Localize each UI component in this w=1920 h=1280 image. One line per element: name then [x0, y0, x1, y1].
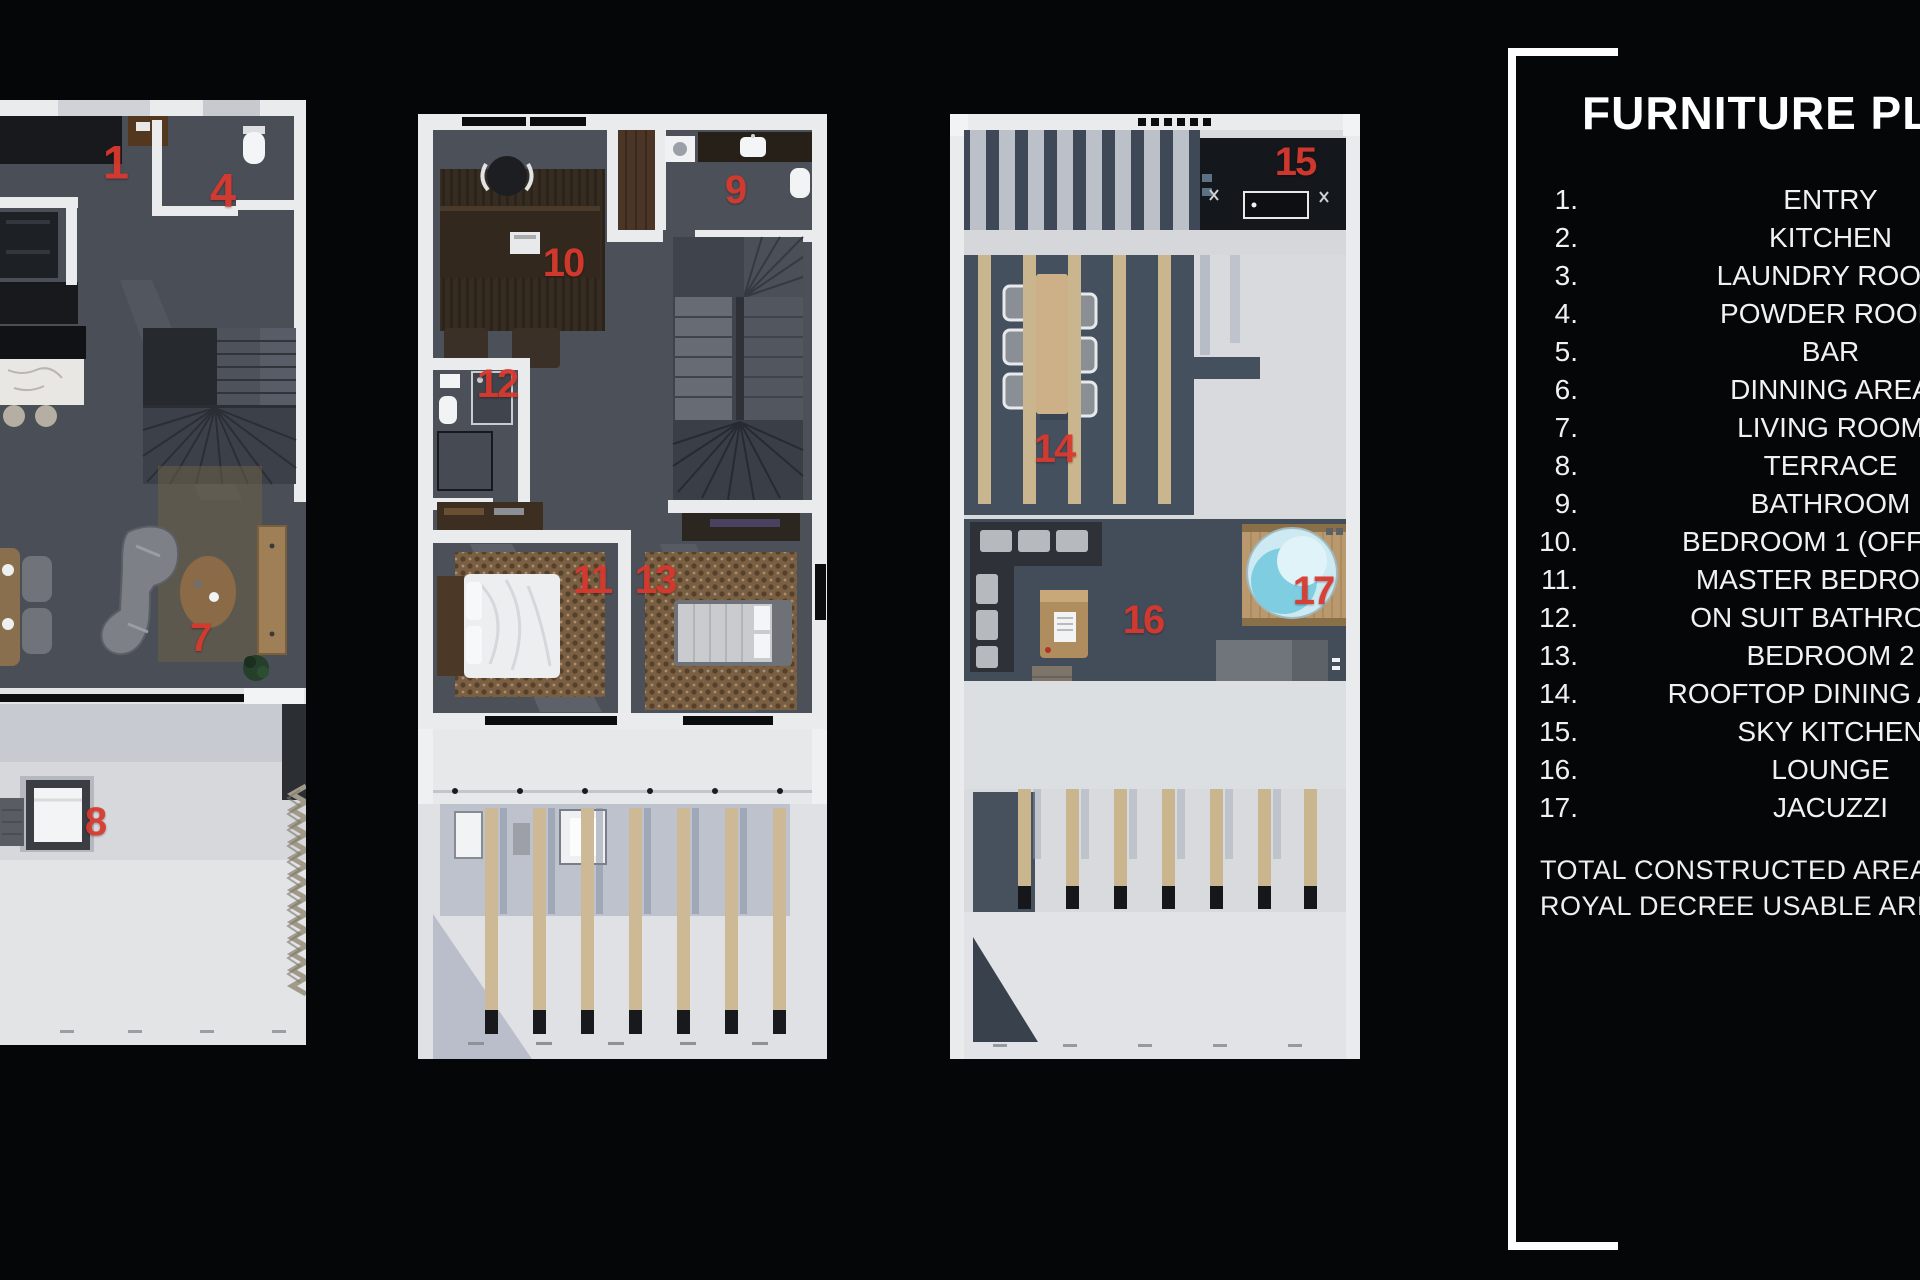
room-marker-master-bedroom: 11 [573, 560, 611, 600]
legend-item-number: 17. [1508, 792, 1578, 824]
legend-item-number: 3. [1508, 260, 1578, 292]
legend-item-kitchen: 2.KITCHEN [1508, 219, 1920, 257]
room-marker-bathroom: 9 [725, 170, 745, 210]
legend-title: FURNITURE PLAN [1582, 90, 1920, 136]
room-marker-bedroom1-office: 10 [543, 243, 584, 283]
legend-item-number: 9. [1508, 488, 1578, 520]
legend-item-number: 2. [1508, 222, 1578, 254]
legend-item-dinning-area: 6.DINNING AREA [1508, 371, 1920, 409]
royal-decree-usable-area: ROYAL DECREE USABLE AREA: [1540, 888, 1920, 924]
legend-item-bar: 5.BAR [1508, 333, 1920, 371]
legend-item-label: ROOFTOP DINING AREA [1578, 678, 1920, 710]
floor-plan-rooftop: 15 14 16 17 [948, 114, 1363, 1059]
legend-item-sky-kitchen: 15.SKY KITCHEN [1508, 713, 1920, 751]
legend-item-label: JACUZZI [1578, 792, 1920, 824]
legend-item-bathroom: 9.BATHROOM [1508, 485, 1920, 523]
staircase [143, 328, 296, 484]
floor-plan-first-graphic [410, 114, 835, 1059]
legend-item-powder-room: 4.POWDER ROOM [1508, 295, 1920, 333]
room-marker-powder-room: 4 [210, 167, 234, 214]
legend-item-laundry-room: 3.LAUNDRY ROOM [1508, 257, 1920, 295]
legend-item-entry: 1.ENTRY [1508, 181, 1920, 219]
total-constructed-area: TOTAL CONSTRUCTED AREA: 2 [1540, 852, 1920, 888]
furniture-plan-sheet: 1 4 7 8 [0, 0, 1920, 1280]
lower-pergola [964, 681, 1346, 1059]
legend-item-label: POWDER ROOM [1578, 298, 1920, 330]
legend-item-number: 6. [1508, 374, 1578, 406]
legend-item-label: LAUNDRY ROOM [1578, 260, 1920, 292]
legend-item-label: BEDROOM 1 (OFFICE) [1578, 526, 1920, 558]
room-marker-terrace: 8 [85, 802, 105, 842]
pergola-terrace [418, 804, 827, 1059]
legend-item-label: SKY KITCHEN [1578, 716, 1920, 748]
legend-item-number: 8. [1508, 450, 1578, 482]
room-marker-entry: 1 [103, 139, 127, 186]
room-marker-lounge: 16 [1123, 600, 1164, 640]
legend-item-label: KITCHEN [1578, 222, 1920, 254]
floor-plan-ground: 1 4 7 8 [0, 100, 306, 1045]
legend-item-label: MASTER BEDROOM [1578, 564, 1920, 596]
legend-item-label: BEDROOM 2 [1578, 640, 1920, 672]
room-marker-bedroom2: 13 [635, 560, 676, 600]
room-marker-ensuite: 12 [477, 364, 518, 404]
legend-item-rooftop-dining: 14.ROOFTOP DINING AREA [1508, 675, 1920, 713]
legend-item-master-bedroom: 11.MASTER BEDROOM [1508, 561, 1920, 599]
legend-item-label: LIVING ROOM [1578, 412, 1920, 444]
legend-item-number: 16. [1508, 754, 1578, 786]
legend-item-label: BATHROOM [1578, 488, 1920, 520]
room-marker-sky-kitchen: 15 [1275, 142, 1316, 182]
legend-item-living-room: 7.LIVING ROOM [1508, 409, 1920, 447]
legend-item-bedroom1-office: 10.BEDROOM 1 (OFFICE) [1508, 523, 1920, 561]
room-marker-jacuzzi: 17 [1293, 571, 1334, 611]
legend-item-label: ON SUIT BATHROOM [1578, 602, 1920, 634]
terrace [0, 688, 306, 1045]
legend-item-ensuite-bathroom: 12.ON SUIT BATHROOM [1508, 599, 1920, 637]
floor-plan-ground-graphic [0, 100, 306, 1045]
master-bedroom [433, 502, 631, 713]
legend-item-terrace: 8.TERRACE [1508, 447, 1920, 485]
room-marker-rooftop-dining: 14 [1034, 429, 1075, 469]
legend-item-label: ENTRY [1578, 184, 1920, 216]
room-marker-living-room: 7 [190, 618, 210, 658]
legend-list: 1.ENTRY 2.KITCHEN 3.LAUNDRY ROOM 4.POWDE… [1508, 181, 1920, 827]
legend-item-number: 11. [1508, 564, 1578, 596]
legend-item-number: 5. [1508, 336, 1578, 368]
legend-item-label: TERRACE [1578, 450, 1920, 482]
floor-plan-first: 9 10 12 11 13 [410, 114, 835, 1059]
staircase [668, 237, 812, 513]
legend-item-lounge: 16.LOUNGE [1508, 751, 1920, 789]
legend-item-bedroom2: 13.BEDROOM 2 [1508, 637, 1920, 675]
legend-item-number: 10. [1508, 526, 1578, 558]
legend-item-number: 13. [1508, 640, 1578, 672]
legend-item-number: 15. [1508, 716, 1578, 748]
legend-item-number: 7. [1508, 412, 1578, 444]
area-totals: TOTAL CONSTRUCTED AREA: 2 ROYAL DECREE U… [1540, 852, 1920, 924]
legend-frame-top-line [1508, 48, 1618, 56]
legend-item-label: LOUNGE [1578, 754, 1920, 786]
legend-item-label: BAR [1578, 336, 1920, 368]
legend-item-number: 1. [1508, 184, 1578, 216]
legend-item-number: 12. [1508, 602, 1578, 634]
legend-frame-bottom-line [1508, 1242, 1618, 1250]
legend-item-number: 14. [1508, 678, 1578, 710]
legend-item-jacuzzi: 17.JACUZZI [1508, 789, 1920, 827]
legend-item-number: 4. [1508, 298, 1578, 330]
balcony [418, 729, 827, 804]
legend-item-label: DINNING AREA [1578, 374, 1920, 406]
